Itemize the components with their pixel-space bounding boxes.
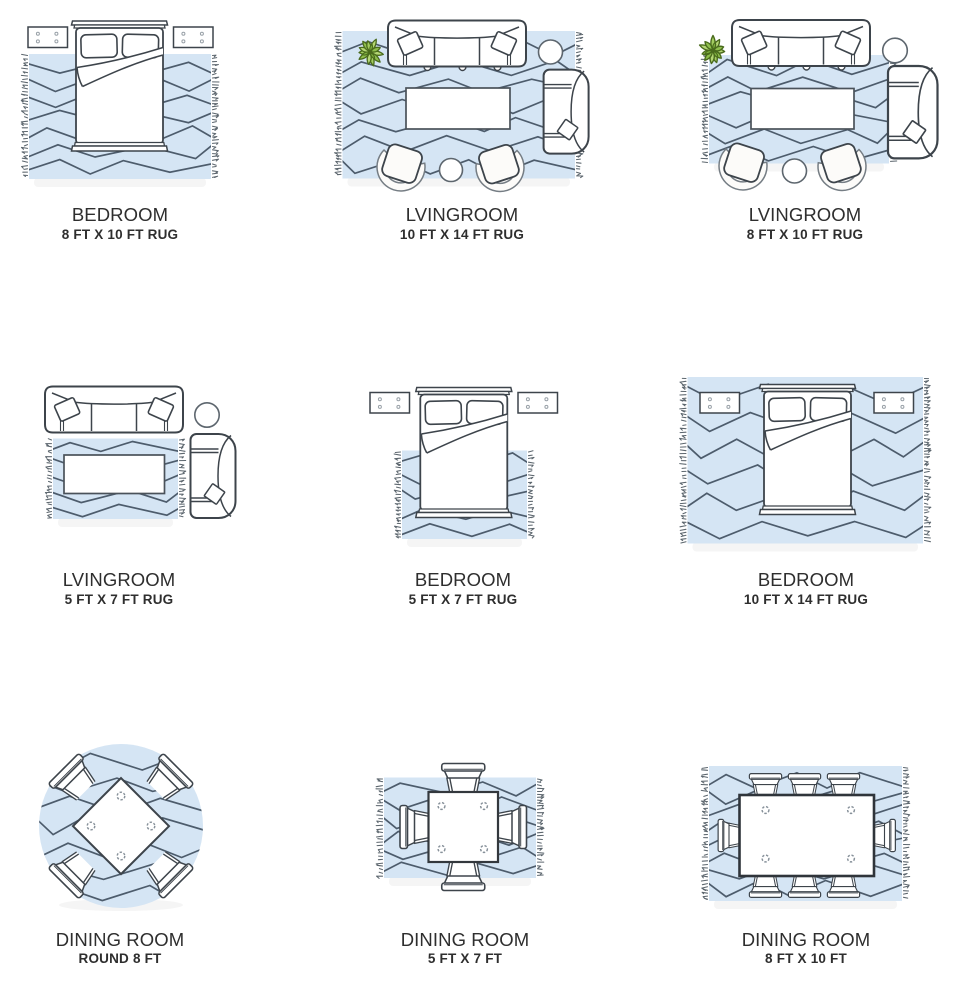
svg-text:8 FT X 10 FT RUG: 8 FT X 10 FT RUG (62, 227, 178, 242)
svg-text:BEDROOM: BEDROOM (72, 204, 168, 225)
svg-text:5 FT X 7 FT: 5 FT X 7 FT (428, 951, 503, 966)
svg-text:LVINGROOM: LVINGROOM (749, 204, 862, 225)
svg-text:8 FT X 10 FT: 8 FT X 10 FT (765, 951, 847, 966)
svg-text:LVINGROOM: LVINGROOM (406, 204, 519, 225)
svg-text:10 FT X 14 FT RUG: 10 FT X 14 FT RUG (744, 592, 868, 607)
svg-text:DINING ROOM: DINING ROOM (401, 929, 530, 950)
svg-text:DINING ROOM: DINING ROOM (56, 929, 185, 950)
svg-text:8 FT X 10 FT RUG: 8 FT X 10 FT RUG (747, 227, 863, 242)
svg-text:DINING ROOM: DINING ROOM (742, 929, 871, 950)
svg-text:BEDROOM: BEDROOM (758, 569, 854, 590)
svg-text:LVINGROOM: LVINGROOM (63, 569, 176, 590)
svg-text:BEDROOM: BEDROOM (415, 569, 511, 590)
svg-text:5 FT X 7 FT RUG: 5 FT X 7 FT RUG (409, 592, 518, 607)
svg-text:ROUND 8 FT: ROUND 8 FT (79, 951, 163, 966)
svg-text:5 FT X 7 FT RUG: 5 FT X 7 FT RUG (65, 592, 174, 607)
svg-text:10 FT X 14 FT RUG: 10 FT X 14 FT RUG (400, 227, 524, 242)
